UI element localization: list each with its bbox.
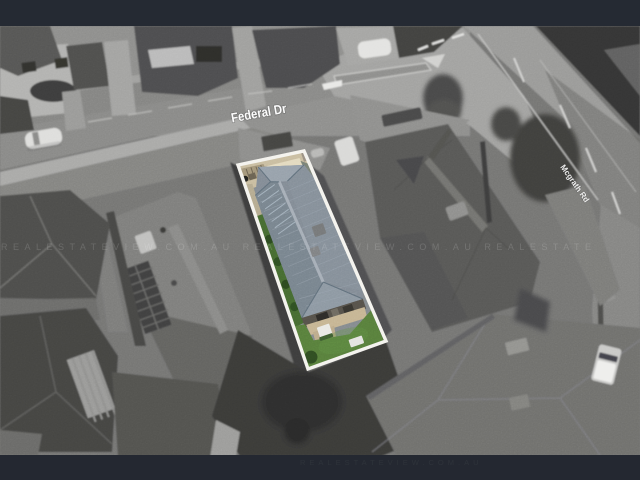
svg-text:REALESTATEVIEW.COM.AU: REALESTATEVIEW.COM.AU bbox=[300, 458, 483, 467]
svg-text:REALESTATEVIEW.COM.AU REALESTA: REALESTATEVIEW.COM.AU REALESTATEVIEW.COM… bbox=[1, 242, 597, 252]
